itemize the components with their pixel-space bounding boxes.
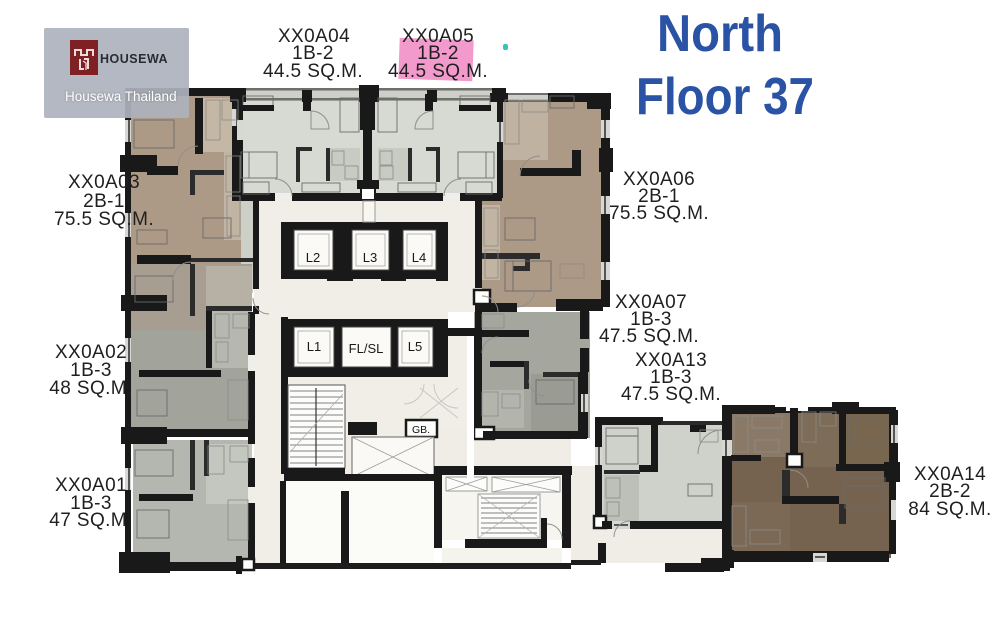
svg-text:84 SQ.M.: 84 SQ.M. — [908, 499, 991, 520]
svg-text:47.5 SQ.M.: 47.5 SQ.M. — [599, 326, 699, 347]
svg-text:Floor 37: Floor 37 — [636, 68, 814, 126]
svg-text:North: North — [657, 5, 783, 63]
svg-text:48 SQ.M.: 48 SQ.M. — [49, 378, 132, 399]
svg-text:47.5 SQ.M.: 47.5 SQ.M. — [621, 384, 721, 405]
svg-text:44.5 SQ.M.: 44.5 SQ.M. — [263, 61, 363, 82]
svg-text:44.5 SQ.M.: 44.5 SQ.M. — [388, 61, 488, 82]
svg-text:XX0A03: XX0A03 — [68, 172, 140, 193]
svg-text:75.5 SQ.M.: 75.5 SQ.M. — [54, 209, 154, 230]
svg-text:47 SQ.M.: 47 SQ.M. — [49, 510, 132, 531]
svg-text:75.5 SQ.M.: 75.5 SQ.M. — [609, 203, 709, 224]
